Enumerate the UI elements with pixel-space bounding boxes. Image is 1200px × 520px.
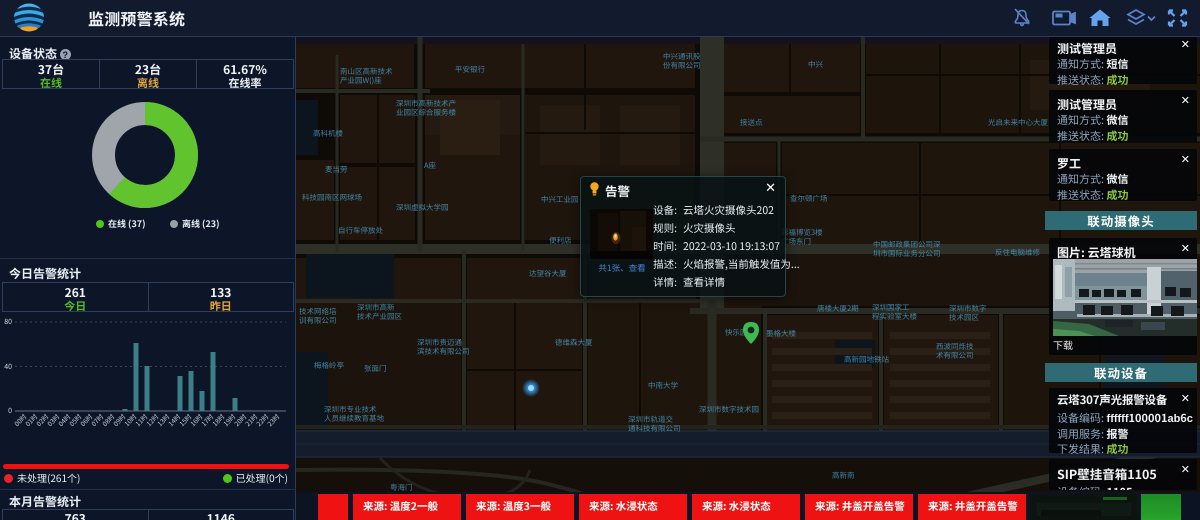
svg-text:23时: 23时 [265, 411, 282, 428]
svg-text:高新园地铁站: 高新园地铁站 [844, 354, 889, 365]
svg-text:科技园南区网球场: 科技园南区网球场 [302, 192, 362, 203]
svg-text:达望谷大厦: 达望谷大厦 [529, 268, 567, 279]
svg-text:技术园区: 技术园区 [949, 312, 979, 323]
svg-text:中兴工业园: 中兴工业园 [541, 194, 579, 205]
svg-text:反住电脑维修: 反住电脑维修 [995, 247, 1040, 258]
svg-text:平安银行: 平安银行 [455, 64, 485, 75]
svg-text:程实验室大楼: 程实验室大楼 [872, 311, 917, 322]
svg-text:深圳市数字技术园: 深圳市数字技术园 [699, 404, 759, 415]
svg-text:墨格大楼: 墨格大楼 [766, 328, 796, 339]
svg-text:产业园W()座: 产业园W()座 [340, 75, 382, 86]
svg-text:光启未来中心大厦: 光启未来中心大厦 [988, 117, 1048, 128]
svg-text:80: 80 [4, 317, 12, 327]
svg-text:德维森大厦: 德维森大厦 [555, 337, 593, 348]
svg-text:梅格岭亭: 梅格岭亭 [314, 360, 344, 371]
svg-text:张面门: 张面门 [364, 363, 387, 374]
svg-text:便利店: 便利店 [549, 235, 572, 246]
svg-text:份有限公司: 份有限公司 [663, 60, 701, 71]
svg-text:深圳虚拟大学园: 深圳虚拟大学园 [396, 202, 449, 213]
svg-text:接送点: 接送点 [740, 117, 763, 128]
svg-text:业园区综合服务楼: 业园区综合服务楼 [396, 107, 456, 118]
svg-text:圳市国际业务分公司: 圳市国际业务分公司 [873, 248, 941, 259]
svg-text:中南大学: 中南大学 [648, 380, 678, 391]
svg-text:麦当劳: 麦当劳 [325, 164, 348, 175]
svg-text:查尔顿广场: 查尔顿广场 [790, 193, 828, 204]
svg-text:训有限公司: 训有限公司 [299, 315, 337, 326]
svg-text:技术产业园区: 技术产业园区 [357, 311, 402, 322]
svg-text:高新南: 高新南 [832, 470, 855, 481]
svg-text:滨技术有限公司: 滨技术有限公司 [417, 346, 470, 357]
svg-text:中兴: 中兴 [808, 59, 823, 70]
svg-text:自行车停放处: 自行车停放处 [338, 225, 383, 236]
svg-text:高科机楼: 高科机楼 [313, 128, 343, 139]
svg-text:40: 40 [4, 362, 12, 372]
svg-text:通科技有限公司: 通科技有限公司 [628, 423, 681, 434]
svg-text:人员继续教育基地: 人员继续教育基地 [324, 413, 384, 424]
svg-text:唐楼大厦2期: 唐楼大厦2期 [817, 303, 859, 314]
svg-text:A座: A座 [424, 160, 437, 171]
svg-text:0: 0 [8, 406, 12, 416]
svg-text:术有限公司: 术有限公司 [936, 350, 974, 361]
